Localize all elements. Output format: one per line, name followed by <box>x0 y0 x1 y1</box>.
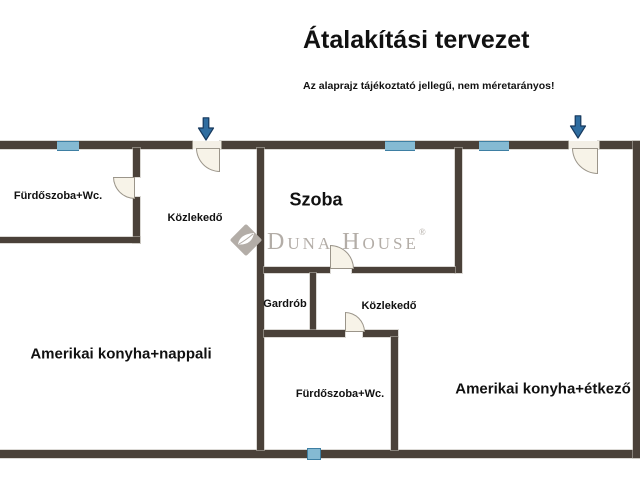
window-bathroom-top <box>57 141 79 151</box>
wall-top-left-segment <box>0 141 192 149</box>
wall-szoba-right <box>455 148 462 273</box>
registered-mark: ® <box>419 227 426 237</box>
label-living: Amerikai konyha+nappali <box>30 346 211 363</box>
label-dining: Amerikai konyha+étkező <box>455 381 631 398</box>
entrance-1-arrow-icon <box>197 117 215 146</box>
label-bathroom-bottom: Fürdőszoba+Wc. <box>296 388 384 400</box>
label-bathroom-top: Fürdőszoba+Wc. <box>14 190 102 202</box>
entrance-2-door <box>572 148 598 174</box>
floor-plan-page: Átalakítási tervezet Az alaprajz tájékoz… <box>0 0 640 480</box>
wall-wardrobe-right <box>310 273 316 330</box>
window-bathroom-bottom <box>307 448 321 460</box>
label-hall-mid: Közlekedő <box>361 300 416 312</box>
window-szoba <box>385 141 415 151</box>
wall-mid-right <box>363 330 398 337</box>
label-szoba: Szoba <box>289 190 342 211</box>
dunahouse-logo-icon <box>226 220 266 265</box>
wall-mid-left <box>264 330 345 337</box>
wall-bathroom-top-right-upper <box>133 148 140 177</box>
entrance-2-arrow-icon <box>569 115 587 144</box>
wall-szoba-bottom-left <box>264 267 330 273</box>
window-dining <box>479 141 509 151</box>
wall-bathroom-top-bottom <box>0 237 140 243</box>
hall-mid-door <box>345 312 365 332</box>
wall-szoba-bottom-right <box>352 267 455 273</box>
wall-bathroom-bottom-right <box>391 337 398 450</box>
bathroom-top-door <box>113 177 135 199</box>
page-title: Átalakítási tervezet <box>303 26 530 55</box>
label-hall-top: Közlekedő <box>167 212 222 224</box>
label-wardrobe: Gardrób <box>263 298 306 310</box>
wall-right <box>633 141 640 458</box>
disclaimer-text: Az alaprajz tájékoztató jellegű, nem mér… <box>303 80 555 92</box>
entrance-1-door <box>196 148 220 172</box>
